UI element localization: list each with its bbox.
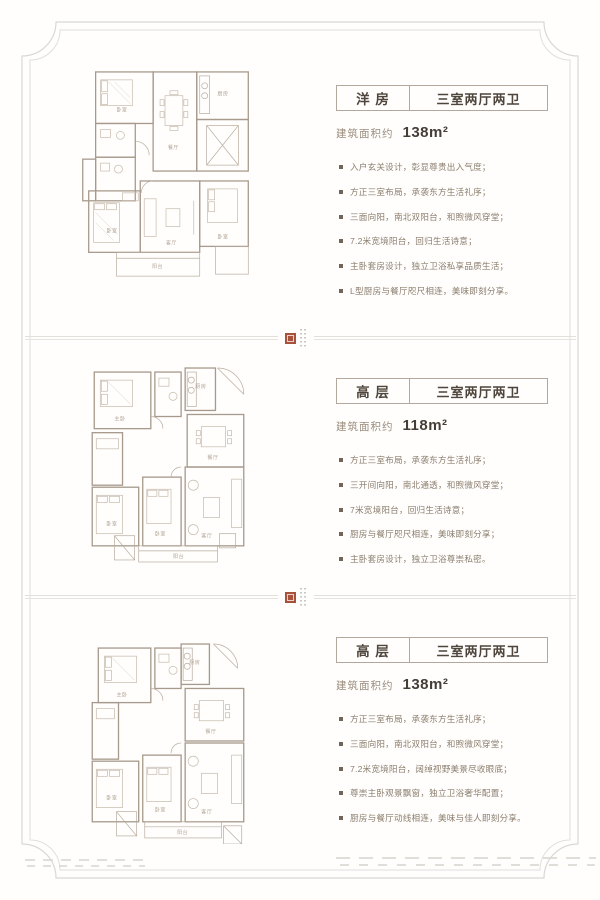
feature-item: 7.2米宽境阳台，回归生活诗意； <box>336 236 548 246</box>
feature-item: 7.2米宽境阳台，阔绰视野美景尽收眼底； <box>336 764 548 774</box>
feature-item: 尊崇主卧观景飘窗，独立卫浴奢华配置； <box>336 788 548 798</box>
layout-label: 三室两厅两卫 <box>410 638 547 662</box>
floor-plan-1: 卧室 餐厅 厨房 卧室 客厅 卧室 阳台 <box>80 64 255 290</box>
feature-item: 方正三室布局，承袭东方生活礼序； <box>336 714 548 724</box>
bullet-square-icon <box>339 557 343 561</box>
watermark <box>336 857 596 869</box>
bullet-square-icon <box>339 289 343 293</box>
seal-side-text <box>300 329 306 347</box>
type-box: 高 层 三室两厅两卫 <box>336 378 548 404</box>
area-prefix: 建筑面积约 <box>336 126 394 141</box>
feature-text: 方正三室布局，承袭东方生活礼序； <box>350 187 491 197</box>
floor-plan-1-drawing: 卧室 餐厅 厨房 卧室 客厅 卧室 阳台 <box>80 64 255 290</box>
section-divider <box>25 331 576 345</box>
room-label: 餐厅 <box>205 728 216 735</box>
feature-item: 厨房与餐厅动线相连，美味与佳人即刻分享。 <box>336 813 548 823</box>
area-value: 138m² <box>403 124 449 141</box>
layout-label: 三室两厅两卫 <box>410 379 547 403</box>
room-label: 主卧 <box>114 416 125 423</box>
area-line: 建筑面积约 138m² <box>336 124 548 141</box>
floorplan-brochure-page: 卧室 餐厅 厨房 卧室 客厅 卧室 阳台 洋 房 三室两厅两卫 建筑面积约 13… <box>0 0 600 900</box>
watermark <box>25 859 145 867</box>
feature-item: 入户玄关设计，彰显尊贵出入气度； <box>336 162 548 172</box>
floor-plan-3: 主卧 厨房 餐厅 卧室 卧室 客厅 阳台 <box>88 642 250 844</box>
room-label: 阳台 <box>173 553 184 560</box>
room-label: 客厅 <box>201 809 212 816</box>
type-label: 高 层 <box>337 638 410 662</box>
area-value: 138m² <box>403 676 449 693</box>
section-2-info: 高 层 三室两厅两卫 建筑面积约 118m² 方正三室布局，承袭东方生活礼序；三… <box>336 378 548 579</box>
room-label: 主卧 <box>116 692 127 699</box>
bullet-square-icon <box>339 532 343 536</box>
feature-text: 厨房与餐厅咫尺相连，美味即刻分享； <box>350 529 500 539</box>
room-label: 客厅 <box>201 533 212 540</box>
bullet-square-icon <box>339 767 343 771</box>
room-label: 阳台 <box>152 263 163 270</box>
feature-text: 主卧套房设计，独立卫浴尊崇私密。 <box>350 554 491 564</box>
feature-text: 方正三室布局，承袭东方生活礼序； <box>350 455 491 465</box>
red-seal-icon <box>285 592 296 603</box>
feature-text: 厨房与餐厅动线相连，美味与佳人即刻分享。 <box>350 813 526 823</box>
feature-text: 三面向阳，南北双阳台，和煦微风穿堂； <box>350 212 508 222</box>
feature-text: 7.2米宽境阳台，回归生活诗意； <box>350 236 477 246</box>
bullet-square-icon <box>339 816 343 820</box>
feature-text: 7.2米宽境阳台，阔绰视野美景尽收眼底； <box>350 764 512 774</box>
room-label: 厨房 <box>189 659 200 666</box>
room-label: 卧室 <box>155 807 166 814</box>
room-label: 卧室 <box>116 107 127 114</box>
section-1-info: 洋 房 三室两厅两卫 建筑面积约 138m² 入户玄关设计，彰显尊贵出入气度；方… <box>336 85 548 311</box>
bullet-square-icon <box>339 483 343 487</box>
room-label: 餐厅 <box>207 454 218 461</box>
feature-text: 三开间向阳，南北通透，和煦微风穿堂； <box>350 480 508 490</box>
layout-label: 三室两厅两卫 <box>410 86 547 110</box>
feature-text: 三面向阳，南北双阳台，和煦微风穿堂； <box>350 739 508 749</box>
room-label: 厨房 <box>195 383 206 390</box>
feature-item: 主卧套房设计，独立卫浴尊崇私密。 <box>336 554 548 564</box>
area-line: 建筑面积约 118m² <box>336 417 548 434</box>
type-label: 洋 房 <box>337 86 410 110</box>
divider-line <box>25 336 278 340</box>
feature-text: 方正三室布局，承袭东方生活礼序； <box>350 714 491 724</box>
feature-text: 7米宽境阳台，回归生活诗意； <box>350 505 469 515</box>
feature-text: L型厨房与餐厅咫尺相连，美味即刻分享。 <box>350 286 513 296</box>
bullet-square-icon <box>339 264 343 268</box>
feature-item: 三面向阳，南北双阳台，和煦微风穿堂； <box>336 739 548 749</box>
room-label: 客厅 <box>166 239 177 246</box>
feature-text: 主卧套房设计，独立卫浴私享品质生活； <box>350 261 508 271</box>
type-label: 高 层 <box>337 379 410 403</box>
bullet-square-icon <box>339 239 343 243</box>
feature-item: 厨房与餐厅咫尺相连，美味即刻分享； <box>336 529 548 539</box>
bullet-square-icon <box>339 458 343 462</box>
type-box: 高 层 三室两厅两卫 <box>336 637 548 663</box>
bullet-square-icon <box>339 190 343 194</box>
feature-text: 尊崇主卧观景飘窗，独立卫浴奢华配置； <box>350 788 508 798</box>
section-3-info: 高 层 三室两厅两卫 建筑面积约 138m² 方正三室布局，承袭东方生活礼序；三… <box>336 637 548 838</box>
room-label: 卧室 <box>218 233 229 240</box>
floor-plan-2-drawing: 主卧 厨房 餐厅 卧室 卧室 客厅 阳台 <box>88 366 250 564</box>
room-label: 卧室 <box>106 521 117 528</box>
feature-text: 入户玄关设计，彰显尊贵出入气度； <box>350 162 491 172</box>
feature-item: L型厨房与餐厅咫尺相连，美味即刻分享。 <box>336 286 548 296</box>
area-line: 建筑面积约 138m² <box>336 676 548 693</box>
room-label: 餐厅 <box>168 144 179 151</box>
room-label: 阳台 <box>177 829 188 836</box>
feature-item: 三开间向阳，南北通透，和煦微风穿堂； <box>336 480 548 490</box>
feature-item: 方正三室布局，承袭东方生活礼序； <box>336 187 548 197</box>
area-prefix: 建筑面积约 <box>336 419 394 434</box>
feature-item: 方正三室布局，承袭东方生活礼序； <box>336 455 548 465</box>
room-label: 卧室 <box>107 228 118 235</box>
feature-item: 7米宽境阳台，回归生活诗意； <box>336 505 548 515</box>
bullet-square-icon <box>339 165 343 169</box>
feature-list: 入户玄关设计，彰显尊贵出入气度；方正三室布局，承袭东方生活礼序；三面向阳，南北双… <box>336 162 548 296</box>
type-box: 洋 房 三室两厅两卫 <box>336 85 548 111</box>
bullet-square-icon <box>339 742 343 746</box>
area-value: 118m² <box>403 417 448 434</box>
section-divider <box>25 590 576 604</box>
feature-list: 方正三室布局，承袭东方生活礼序；三面向阳，南北双阳台，和煦微风穿堂；7.2米宽境… <box>336 714 548 824</box>
floor-plan-2: 主卧 厨房 餐厅 卧室 卧室 客厅 阳台 <box>88 366 250 564</box>
seal-side-text <box>300 588 306 606</box>
area-prefix: 建筑面积约 <box>336 678 394 693</box>
feature-list: 方正三室布局，承袭东方生活礼序；三开间向阳，南北通透，和煦微风穿堂；7米宽境阳台… <box>336 455 548 565</box>
divider-line <box>25 595 278 599</box>
bullet-square-icon <box>339 508 343 512</box>
bullet-square-icon <box>339 717 343 721</box>
room-label: 卧室 <box>106 795 117 802</box>
room-label: 卧室 <box>155 531 166 538</box>
room-label: 厨房 <box>218 91 229 98</box>
feature-item: 三面向阳，南北双阳台，和煦微风穿堂； <box>336 212 548 222</box>
bullet-square-icon <box>339 215 343 219</box>
divider-line <box>314 336 576 340</box>
floor-plan-3-drawing: 主卧 厨房 餐厅 卧室 卧室 客厅 阳台 <box>88 642 250 844</box>
feature-item: 主卧套房设计，独立卫浴私享品质生活； <box>336 261 548 271</box>
divider-line <box>314 595 576 599</box>
bullet-square-icon <box>339 791 343 795</box>
red-seal-icon <box>285 333 296 344</box>
